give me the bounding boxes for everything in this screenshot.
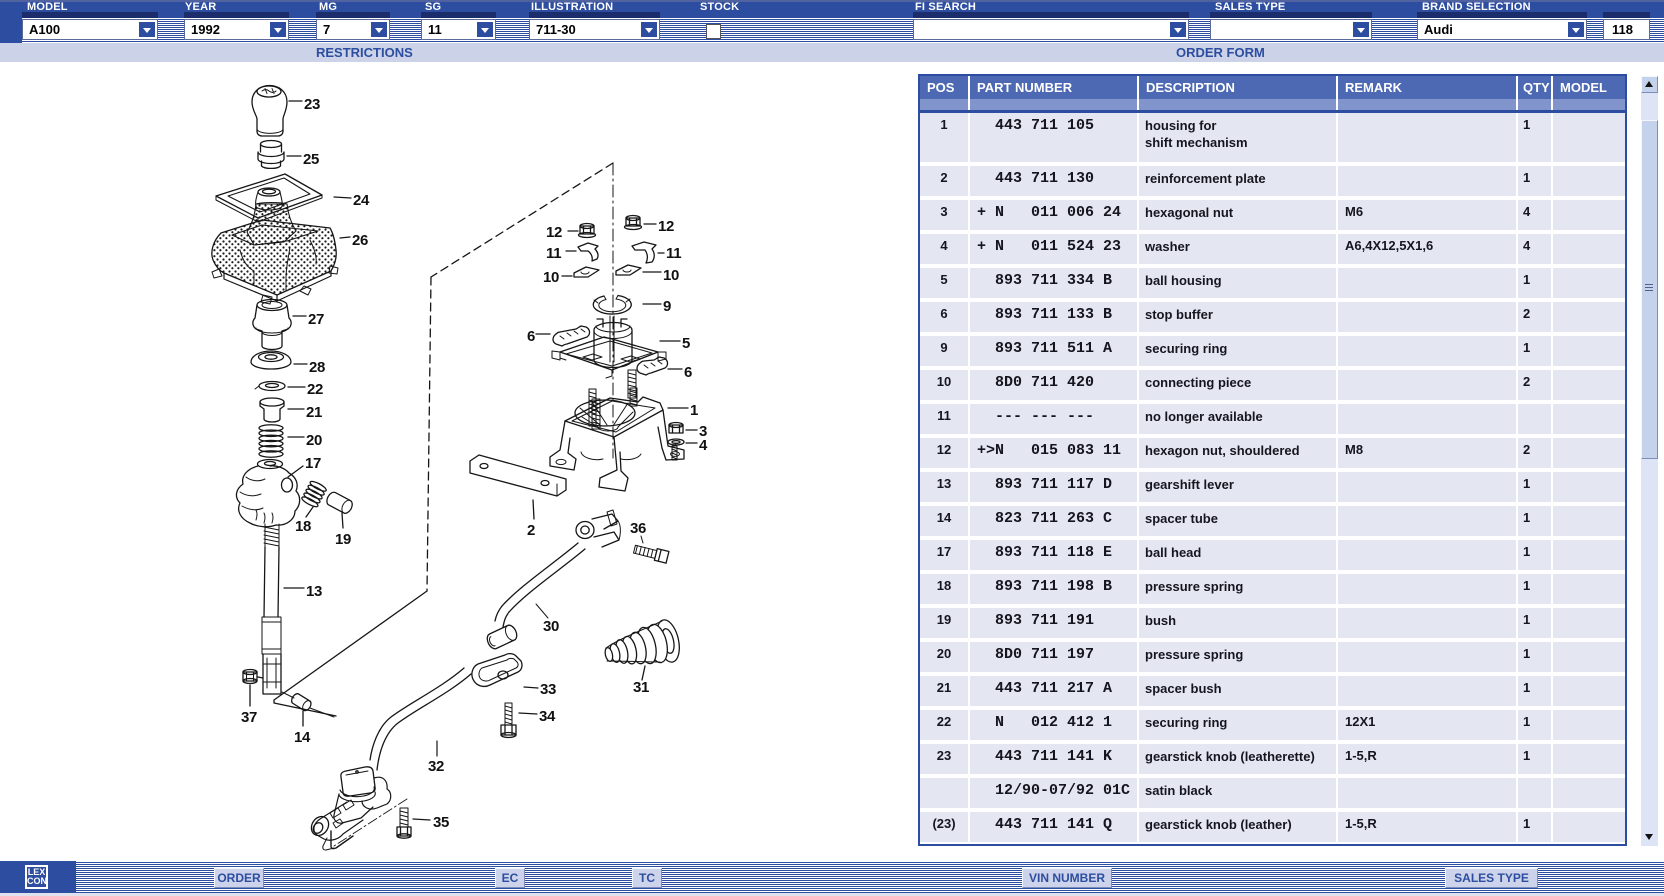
svg-text:22: 22 [307,381,323,398]
svg-text:12: 12 [658,218,674,235]
svg-text:36: 36 [630,520,646,537]
svg-text:17: 17 [305,455,321,472]
svg-text:2: 2 [527,522,535,539]
svg-text:26: 26 [352,232,368,249]
svg-text:20: 20 [306,432,322,449]
svg-text:10: 10 [663,267,679,284]
svg-text:10: 10 [543,269,559,286]
svg-text:28: 28 [309,359,325,376]
svg-text:12: 12 [546,224,562,241]
svg-text:18: 18 [295,518,311,535]
svg-text:14: 14 [294,729,311,746]
svg-text:9: 9 [663,298,671,315]
svg-text:33: 33 [540,681,556,698]
svg-text:5: 5 [682,335,690,352]
svg-text:11: 11 [546,245,561,262]
svg-text:25: 25 [303,151,319,168]
svg-text:37: 37 [241,709,257,726]
svg-text:6: 6 [684,364,692,381]
svg-text:30: 30 [543,618,559,635]
svg-text:6: 6 [527,328,535,345]
svg-text:21: 21 [306,404,322,421]
svg-text:23: 23 [304,96,320,113]
svg-text:24: 24 [353,192,370,209]
svg-text:4: 4 [699,437,708,454]
svg-text:1: 1 [690,402,698,419]
svg-text:27: 27 [308,311,324,328]
svg-text:35: 35 [433,814,449,831]
svg-text:11: 11 [666,245,681,262]
svg-text:32: 32 [428,758,444,775]
svg-text:13: 13 [306,583,322,600]
svg-text:19: 19 [335,531,351,548]
svg-text:34: 34 [539,708,556,725]
svg-text:31: 31 [633,679,649,696]
